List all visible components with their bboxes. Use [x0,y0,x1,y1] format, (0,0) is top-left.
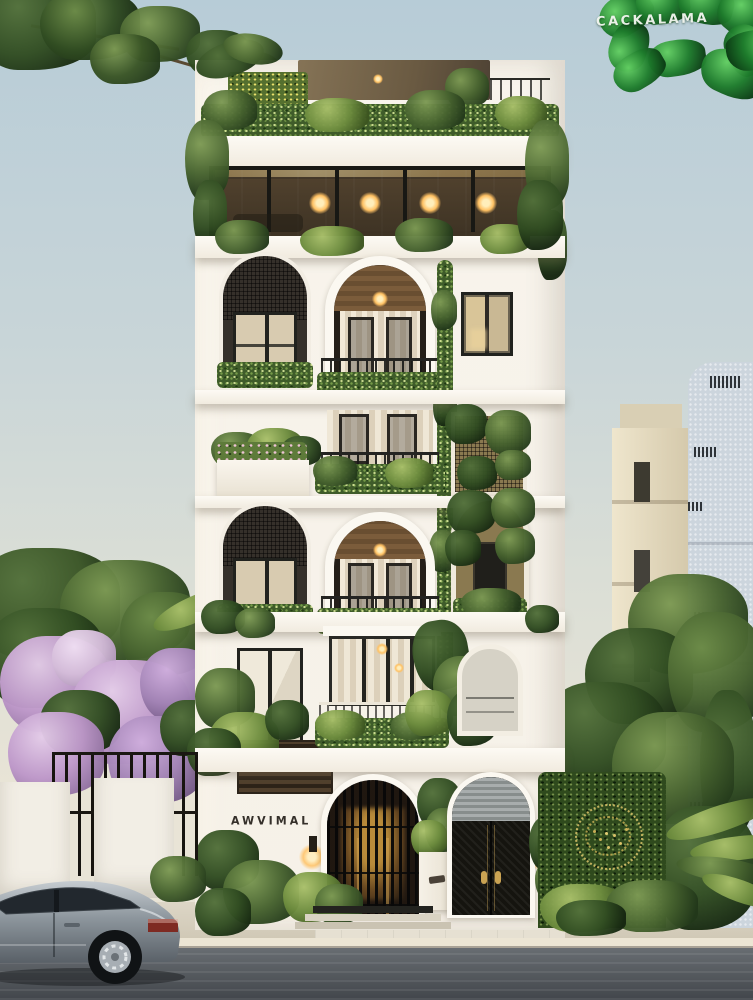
entry-shrub [411,820,447,856]
leaf-cluster [90,34,160,84]
vine-mass [495,450,531,480]
floor-slab [195,390,565,404]
downlight [372,291,388,307]
planter-spout [429,875,446,884]
hedge-shrub [556,900,626,936]
tropical-plant [405,690,453,736]
roof-downlight [373,74,383,84]
gate-opening [452,777,530,915]
base-planting [195,888,251,936]
door-split [490,821,492,915]
vine-mass [447,490,495,534]
facade-ornament [688,502,704,511]
arch-slats [452,777,530,823]
trailing-plants [395,218,453,252]
downlight [394,663,404,673]
arched-screen-window [223,256,307,384]
white-planter-box [217,460,309,496]
vine-mass [517,180,563,250]
watermark-logo: CACKALAMA [580,0,753,110]
trailing-plants [300,226,364,256]
gate-crossbar [327,872,419,874]
mesh-screen [223,506,307,566]
mullion [335,170,339,232]
facade-ornament [694,447,716,457]
vine-tuft [431,290,457,330]
downlight [475,192,497,214]
planter-shrub [315,710,365,740]
parapet-shrub [305,98,369,132]
hedge-monogram [575,804,643,870]
downlight [359,192,381,214]
step [295,922,451,929]
window-slot [634,462,650,502]
downlight [309,192,331,214]
vine-mass [445,404,487,444]
vine-mass [457,456,497,490]
vine-mass [491,488,535,528]
door-gold-edge [494,825,495,911]
mesh-screen [223,256,307,320]
architectural-render: AWVIMAL [0,0,753,1000]
pointed-arch-window [457,644,523,736]
plant-spill [265,700,309,740]
rectangular-window [461,292,513,356]
facade-crease [688,542,753,545]
balcony-slab [195,748,565,772]
parked-sedan [0,845,190,995]
roof-fascia [197,136,563,166]
facade-ornament [710,376,740,388]
window-glow [470,329,486,349]
parapet-shrub [405,90,465,130]
door-handle [481,871,487,884]
garage-gate [447,772,535,918]
entry-steps [295,906,451,932]
step [305,914,441,921]
trailing-plants [525,605,559,633]
downlight [373,543,387,557]
trailing-plants [235,608,275,638]
reflection-line [466,711,514,713]
door-handle [495,871,501,884]
monogram-ring [585,816,631,856]
sill-planter [217,362,313,388]
building-name-sign: AWVIMAL [231,813,311,827]
gate-crossbar [327,826,419,828]
planter-shrub [313,456,357,486]
mullion [362,639,366,703]
black-double-doors [452,821,530,915]
sconce-body [309,836,317,852]
monogram-dots [605,832,608,835]
reflection-line [466,697,514,699]
vine-mass [445,530,481,566]
door-gold-edge [487,825,488,911]
vine-mass [495,528,535,564]
downlight [376,643,388,655]
step [313,906,433,913]
trailing-plants [215,220,269,254]
main-building: AWVIMAL [195,60,565,930]
downlight [419,192,441,214]
planter-shrub [385,458,433,488]
vine-mass [485,410,531,454]
